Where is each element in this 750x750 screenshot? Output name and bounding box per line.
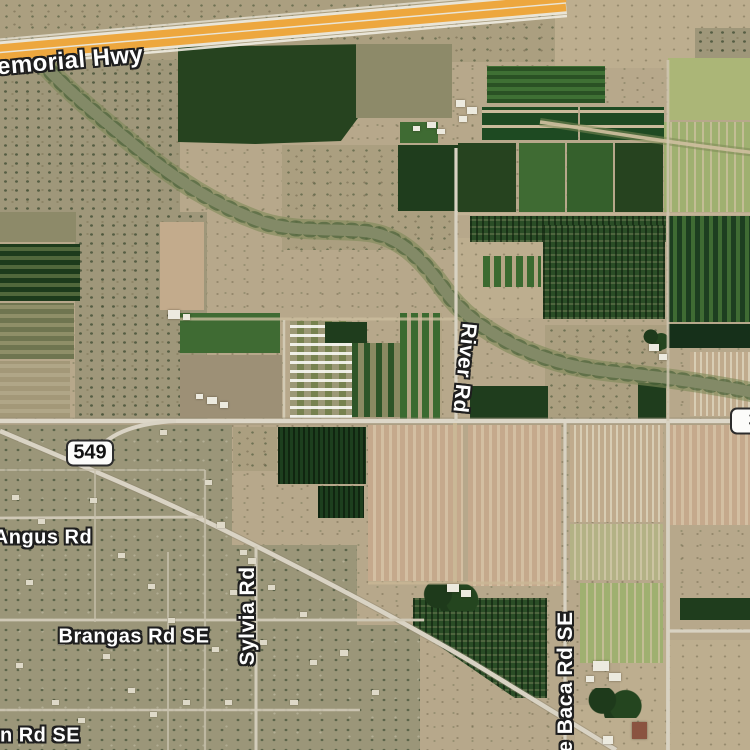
- road-label-sylvia-rd: Sylvia Rd: [236, 566, 260, 665]
- building: [205, 480, 212, 485]
- building: [659, 354, 667, 360]
- building: [196, 394, 203, 399]
- building: [128, 688, 135, 693]
- building: [183, 700, 190, 705]
- building: [340, 650, 348, 656]
- building: [310, 660, 317, 665]
- building: [12, 495, 19, 500]
- building: [150, 712, 157, 717]
- building: [456, 100, 465, 107]
- building: [447, 584, 459, 592]
- building: [649, 344, 659, 351]
- building: [467, 107, 477, 114]
- building: [38, 519, 45, 524]
- building: [461, 590, 471, 597]
- building: [52, 700, 59, 705]
- route-549: [0, 431, 616, 750]
- route-549-casing: [0, 431, 616, 750]
- route-shield-3-partial: 3: [730, 408, 750, 435]
- building: [26, 580, 33, 585]
- building: [427, 122, 436, 128]
- road-label-angus-rd: Angus Rd: [0, 527, 92, 550]
- building: [268, 585, 275, 590]
- road-label-brangas-rd-se: Brangas Rd SE: [59, 626, 210, 649]
- building: [168, 618, 175, 623]
- wash-upper-sand: [540, 122, 750, 153]
- road-label-in-rd-se: in Rd SE: [0, 725, 80, 748]
- wash-sand: [42, 62, 750, 393]
- building: [593, 661, 609, 671]
- building: [183, 314, 190, 320]
- building: [168, 310, 180, 319]
- satellite-map[interactable]: Memorial HwyRiver RdAngus RdSylvia RdBra…: [0, 0, 750, 750]
- building: [413, 126, 420, 131]
- building-red-roof: [632, 722, 647, 739]
- route-shield-549: 549: [66, 440, 114, 467]
- wash-trees: [42, 62, 750, 393]
- building: [217, 522, 225, 528]
- building: [118, 553, 125, 558]
- building: [586, 676, 594, 682]
- building: [603, 736, 613, 744]
- building: [609, 673, 621, 681]
- building: [207, 397, 217, 404]
- building: [260, 640, 267, 645]
- building: [372, 690, 379, 695]
- building: [212, 647, 219, 652]
- building: [90, 498, 97, 503]
- building: [240, 550, 247, 555]
- building: [290, 700, 298, 705]
- angus-rd-road: [0, 517, 203, 518]
- building: [225, 700, 232, 705]
- building: [78, 718, 85, 723]
- building: [459, 116, 467, 122]
- building: [220, 402, 228, 408]
- building: [300, 612, 307, 617]
- building: [248, 558, 256, 564]
- building: [437, 129, 445, 134]
- building: [160, 430, 167, 435]
- building: [148, 584, 155, 589]
- building: [16, 663, 23, 668]
- wash-vegetation: [42, 62, 750, 393]
- road-label-e-baca-rd-se: e Baca Rd SE: [554, 611, 578, 750]
- building: [103, 654, 110, 659]
